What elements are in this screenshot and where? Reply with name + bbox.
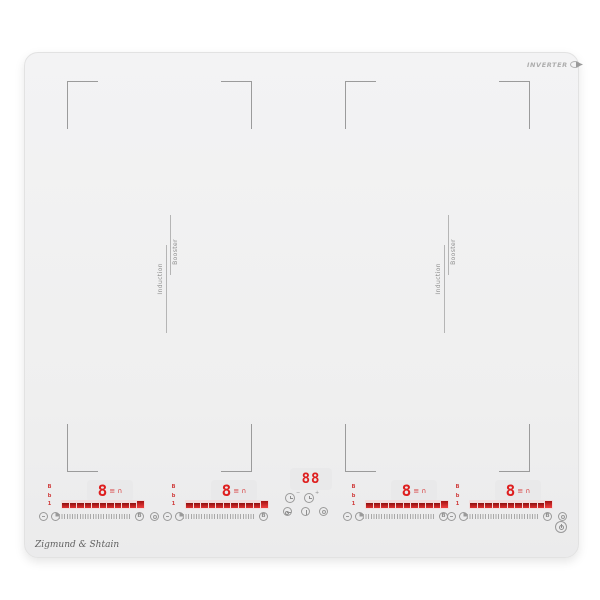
power-slider[interactable] [185,500,269,509]
heat-bars-icon: ≡ [517,488,523,495]
heat-bars-icon: ≡ [233,488,239,495]
indicator-mark: 1 [352,500,355,509]
zone-indicator-icons: B b 1 [45,483,54,509]
booster-icon[interactable]: B [135,512,144,521]
pause-icon[interactable] [301,507,310,516]
zone-left-bottom-left-bracket [67,424,98,472]
power-level-digit: 8 [98,480,108,502]
slider-ticks[interactable] [59,514,131,519]
induction-label: Induction [435,263,442,295]
zone-touch-row: B [37,511,159,521]
heat-bars-icon: ≡ [413,488,419,495]
booster-icon[interactable]: B [259,512,268,521]
slider-ticks[interactable] [467,514,539,519]
zone-indicator-icons: B b 1 [349,483,358,509]
power-slider[interactable] [61,500,145,509]
bridge-icon[interactable] [558,512,567,521]
power-slider[interactable] [365,500,449,509]
keep-warm-icon[interactable] [319,507,328,516]
indicator-mark: b [172,492,176,501]
heat-indicator-icon[interactable] [447,512,456,521]
zone-power-display: 8 ≡ ∩ [391,480,437,502]
timer-plus-mark: + [315,490,319,496]
heat-indicator-icon[interactable] [343,512,352,521]
timer-display: 88 [290,468,332,490]
heat-indicator-icon[interactable] [39,512,48,521]
zone-left-bottom-right-bracket [221,424,252,472]
flex-zone-mark-right: Booster Induction [433,213,461,337]
zone-right-bottom-left-bracket [345,424,376,472]
zone-power-display: 8 ≡ ∩ [87,480,133,502]
indicator-mark: B [352,483,356,492]
heat-bars-icon: ≡ [109,488,115,495]
zone-right-bottom-right-bracket [499,424,530,472]
pot-icon: ∩ [525,488,530,495]
inverter-badge: INVERTER [527,60,583,69]
indicator-mark: 1 [48,500,51,509]
timer-digits: 88 [302,468,321,490]
booster-line [170,215,171,275]
zone-power-display: 8 ≡ ∩ [495,480,541,502]
indicator-mark: 1 [456,500,459,509]
heat-indicator-icon[interactable] [163,512,172,521]
timer-minus-icon[interactable] [285,493,295,503]
indicator-mark: 1 [172,500,175,509]
zone-left-top-right-bracket [221,81,252,129]
indicator-mark: B [456,483,460,492]
induction-hob: INVERTER Booster Induction Booster Induc… [24,52,579,558]
bridge-icon[interactable] [150,512,159,521]
indicator-mark: b [456,492,460,501]
induction-line [166,245,167,333]
zone-indicator-icons: B b 1 [453,483,462,509]
pot-icon: ∩ [241,488,246,495]
pot-icon: ∩ [421,488,426,495]
timer-minus-mark: − [296,490,300,496]
slider-ticks[interactable] [363,514,435,519]
child-lock-icon[interactable] [283,507,292,516]
pot-icon: ∩ [117,488,122,495]
zone-power-display: 8 ≡ ∩ [211,480,257,502]
power-level-digit: 8 [222,480,232,502]
indicator-mark: B [172,483,176,492]
inverter-label: INVERTER [527,61,568,69]
zone-right-top-right-bracket [499,81,530,129]
brand-signature: Zigmund & Shtain [35,540,119,550]
power-level-digit: 8 [506,480,516,502]
zone-2-controls: B b 1 8 ≡ ∩ B [161,480,283,520]
product-photo-stage: INVERTER Booster Induction Booster Induc… [0,0,600,600]
zone-touch-row: B [161,511,283,521]
zone-right-top-left-bracket [345,81,376,129]
zone-4-controls: B b 1 8 ≡ ∩ B [445,480,567,520]
zone-touch-row: B [445,511,567,521]
inverter-swoosh-icon [570,60,583,69]
timer-plus-icon[interactable] [304,493,314,503]
indicator-mark: b [48,492,52,501]
booster-label: Booster [172,239,179,265]
zone-left-top-left-bracket [67,81,98,129]
zone-indicator-icons: B b 1 [169,483,178,509]
booster-icon[interactable]: B [543,512,552,521]
main-power-icon[interactable] [555,521,567,533]
flex-zone-mark-left: Booster Induction [155,213,183,337]
power-slider[interactable] [469,500,553,509]
power-level-digit: 8 [402,480,412,502]
indicator-mark: b [352,492,356,501]
induction-line [444,245,445,333]
zone-1-controls: B b 1 8 ≡ ∩ B [37,480,159,520]
booster-label: Booster [450,239,457,265]
induction-label: Induction [157,263,164,295]
indicator-mark: B [48,483,52,492]
slider-ticks[interactable] [183,514,255,519]
booster-line [448,215,449,275]
